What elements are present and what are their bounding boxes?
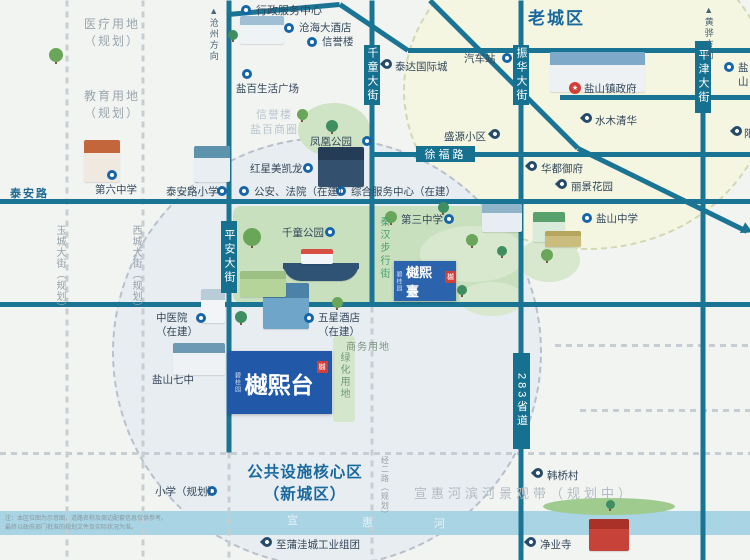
taian-road-label: 泰安路	[10, 187, 49, 201]
poi-xinyulou-icon-dot	[310, 40, 314, 44]
poi-yangguang-east-pin-dot	[734, 128, 740, 134]
poi-hongxing-icon-dot	[306, 166, 310, 170]
qinhan-street-label: 秦汉步行街	[377, 216, 390, 281]
yiliao-planned-label: 医疗用地 （规划）	[80, 16, 144, 51]
project-logo-small-sub: 碧桂园	[394, 271, 403, 292]
poi-yanshan-east-label: 盐山	[738, 62, 750, 89]
poi-xingzheng-center-label: 行政服务中心	[256, 4, 322, 18]
temple-jingyesi-roof	[589, 519, 629, 529]
tree-0-canopy	[49, 48, 63, 62]
building-hongxing	[318, 147, 364, 187]
project-logo-main-seal: 樾	[317, 361, 328, 373]
sports-field-roof	[545, 231, 581, 236]
poi-gongan-fayuan-icon-dot	[242, 189, 246, 193]
poi-huadu-yufu-pin-dot	[529, 163, 535, 169]
green-blob-3	[460, 282, 524, 316]
poi-disan-zhongxue-icon-dot	[447, 217, 451, 221]
building-school-east	[482, 204, 522, 232]
poi-xinyulou-label: 信誉楼	[322, 36, 354, 50]
poi-diliu-zhongxue-icon	[107, 170, 117, 180]
old-town-label: 老城区	[528, 8, 585, 30]
tree-7-canopy	[497, 246, 507, 256]
poi-hongxing-icon	[303, 163, 313, 173]
poi-gongan-fayuan-label: 公安、法院（在建）	[254, 186, 349, 200]
tree-8-canopy	[541, 249, 553, 261]
poi-qichezhan-label: 汽车站	[464, 53, 496, 67]
poi-jingye-si-pin-dot	[528, 539, 534, 545]
poi-huadu-yufu-label: 华都御府	[541, 163, 583, 177]
huanghua-direction: ▲黄骅方向	[702, 5, 714, 61]
building-diliu-zhongxue-roof	[84, 140, 120, 153]
building-school-east-roof	[482, 204, 522, 213]
poi-yanshan-zhongxue-icon-dot	[585, 216, 589, 220]
building-taianlu-xiaoxue	[194, 146, 230, 182]
poi-xinyulou-icon	[307, 37, 317, 47]
river-char-xuan: 宣	[287, 514, 298, 528]
poi-yanbai-plaza-icon	[242, 69, 252, 79]
poi-zonghe-center-label: 综合服务中心（在建）	[351, 186, 456, 200]
poi-gongan-fayuan-icon	[239, 186, 249, 196]
poi-jingye-si-label: 净业寺	[540, 539, 572, 553]
poi-xingzheng-center-icon-dot	[244, 8, 248, 12]
poi-yanbai-plaza-icon-dot	[245, 72, 249, 76]
poi-shuimu-qinghua-label: 水木清华	[595, 115, 637, 129]
poi-yanshan-east-icon-dot	[727, 65, 731, 69]
poi-taida-guojicheng-label: 泰达国际城	[395, 61, 448, 75]
poi-lijing-huayuan-pin-dot	[559, 181, 565, 187]
shangwu-yongdi-label: 商务用地	[346, 341, 390, 354]
disclaimer-line-1: 注：本区位图为示意图，道路名称及周边配套信息仅供参考。	[5, 516, 167, 524]
diagonal-road-arrow	[740, 222, 750, 238]
poi-yanshan-east-icon	[724, 62, 734, 72]
park-playfield	[240, 271, 286, 297]
sports-field	[545, 231, 581, 247]
poi-fenghuang-park-icon	[362, 136, 372, 146]
poi-canghai-hotel-icon-dot	[287, 26, 291, 30]
river-char-hui: 惠	[362, 516, 373, 530]
poi-puwacheng-label: 至蒲洼城工业组团	[276, 539, 360, 553]
park-playfield-roof	[240, 271, 286, 279]
poi-canghai-hotel-icon	[284, 23, 294, 33]
xicheng-street-label: 西城大街（规划）	[129, 225, 142, 313]
poi-disan-zhongxue-label: 第三中学	[401, 214, 443, 228]
poi-yanshan-zhongxue-label: 盐山中学	[596, 213, 638, 227]
project-logo-main: 碧桂园 樾熙台 樾	[228, 351, 332, 414]
poi-qianchong-park-icon	[325, 227, 335, 237]
poi-hanqiao-cun-label: 韩桥村	[547, 470, 579, 484]
building-qizhong-roof	[173, 343, 225, 353]
poi-hanqiao-cun-pin-icon	[531, 466, 545, 480]
poi-qichezhan-icon	[502, 53, 512, 63]
poi-qichezhan-icon-dot	[505, 56, 509, 60]
poi-diliu-zhongxue-icon-dot	[110, 173, 114, 177]
poi-diliu-zhongxue-label: 第六中学	[95, 184, 137, 198]
tree-5-canopy	[438, 202, 449, 213]
poi-taianlu-xiaoxue-label: 泰安路小学	[166, 186, 219, 200]
building-zhenfu-roof	[550, 52, 645, 65]
poi-yangguang-east-label: 阳	[744, 128, 750, 142]
project-logo-main-text: 樾熙台	[245, 366, 314, 400]
project-logo-main-sub: 碧桂园	[233, 372, 242, 393]
poi-xiaoxue-guihua-label: 小学（规划）	[155, 486, 218, 500]
jiaoyu-planned-label: 教育用地 （规划）	[80, 88, 144, 123]
pingan-street-label: 平安大街	[221, 221, 237, 293]
building-taianlu-xiaoxue-roof	[194, 146, 230, 158]
disclaimer-line-2: 最终以政府部门批准的规划文件及实际状况为准。	[5, 525, 137, 533]
building-xingzheng	[240, 16, 284, 44]
core-area-label: 公共设施核心区 （新城区）	[238, 462, 372, 505]
tree-6-canopy	[466, 234, 478, 246]
poi-lijing-huayuan-label: 丽景花园	[571, 181, 613, 195]
dashed-east-2	[580, 409, 750, 412]
jinger-road-label: 经二路（规划）	[379, 456, 389, 519]
poi-shuimu-qinghua-pin-dot	[584, 115, 590, 121]
park-ship-cabin	[301, 249, 333, 264]
yucheng-street-label: 玉城大街（规划）	[53, 225, 66, 313]
riverfront-belt-label: 宣惠河滨河景观带（规划中）	[414, 486, 635, 503]
poi-disan-zhongxue-icon	[444, 214, 454, 224]
tree-1-canopy	[228, 30, 238, 40]
poi-xingzheng-center-icon	[241, 5, 251, 15]
tree-12-canopy	[243, 228, 261, 246]
poi-qianchong-park-icon-dot	[328, 230, 332, 234]
project-logo-small-text: 樾熙臺	[406, 262, 442, 300]
poi-taida-guojicheng-pin-dot	[384, 61, 390, 67]
poi-fenghuang-park-icon-dot	[365, 139, 369, 143]
xinyu-shangquan-label: 信誉楼 盐百商圈	[244, 108, 304, 138]
xufu-road-label: 徐福路	[416, 146, 475, 162]
zhenhua-street-label: 振华大街	[513, 45, 529, 105]
poi-zhongyiyuan-label: 中医院 （在建）	[156, 312, 198, 339]
s283-road-label: 283省道	[513, 353, 530, 449]
poi-hongxing-label: 红星美凯龙	[250, 163, 303, 177]
poi-wuxing-hotel-icon	[304, 313, 314, 323]
lvhua-yongdi-label: 绿化用地	[337, 352, 350, 400]
pingjin-street	[701, 45, 706, 560]
poi-wuxing-hotel-label: 五星酒店 （在建）	[318, 312, 360, 339]
poi-taida-guojicheng-pin-icon	[380, 57, 394, 71]
tree-10-canopy	[332, 297, 343, 308]
tree-9-canopy	[235, 311, 247, 323]
park-ship-cabin-roof	[301, 249, 333, 254]
temple-jingyesi	[589, 519, 629, 551]
building-qizhong	[173, 343, 225, 375]
poi-canghai-hotel-label: 沧海大酒店	[299, 22, 352, 36]
project-logo-small-seal: 樾	[445, 271, 456, 283]
poi-yanshan-qizhong-label: 盐山七中	[152, 374, 194, 388]
poi-yanshan-zhenfu-label: 盐山镇政府	[584, 83, 637, 97]
poi-yanshan-zhongxue-icon	[582, 213, 592, 223]
poi-hanqiao-cun-pin-dot	[535, 470, 541, 476]
tree-11-canopy	[457, 285, 467, 295]
poi-shengyuan-pin-dot	[492, 131, 498, 137]
poi-yanbai-plaza-label: 盐百生活广场	[236, 83, 299, 97]
pingan-south-planned	[228, 452, 231, 560]
poi-zhongyiyuan-icon-dot	[199, 316, 203, 320]
poi-puwacheng-pin-dot	[264, 539, 270, 545]
poi-jingye-si-pin-icon	[524, 535, 538, 549]
park-ship-hull	[283, 263, 359, 281]
qianchong-street-label: 千童大街	[364, 45, 380, 105]
location-map: 碧桂园 樾熙台 樾 碧桂园 樾熙臺 樾 平安大街千童大街振华大街平津大街283省…	[0, 0, 750, 560]
poi-shengyuan-label: 盛源小区	[444, 131, 486, 145]
dashed-east-1	[555, 344, 750, 347]
poi-yanshan-zhenfu-badge-icon: ★	[569, 82, 581, 94]
poi-fenghuang-park-label: 凤凰公园	[310, 136, 352, 150]
poi-taianlu-xiaoxue-icon-dot	[220, 189, 224, 193]
river-char-he: 河	[434, 517, 445, 531]
poi-qianchong-park-label: 千童公园	[282, 227, 324, 241]
cangzhou-direction: ▲沧州方向	[207, 6, 219, 62]
project-logo-small: 碧桂园 樾熙臺 樾	[394, 261, 456, 301]
mid-cross-road	[0, 302, 750, 307]
building-green-school-roof	[533, 212, 565, 222]
tree-3-canopy	[326, 120, 338, 132]
poi-wuxing-hotel-icon-dot	[307, 316, 311, 320]
dashed-full-south	[0, 452, 750, 455]
